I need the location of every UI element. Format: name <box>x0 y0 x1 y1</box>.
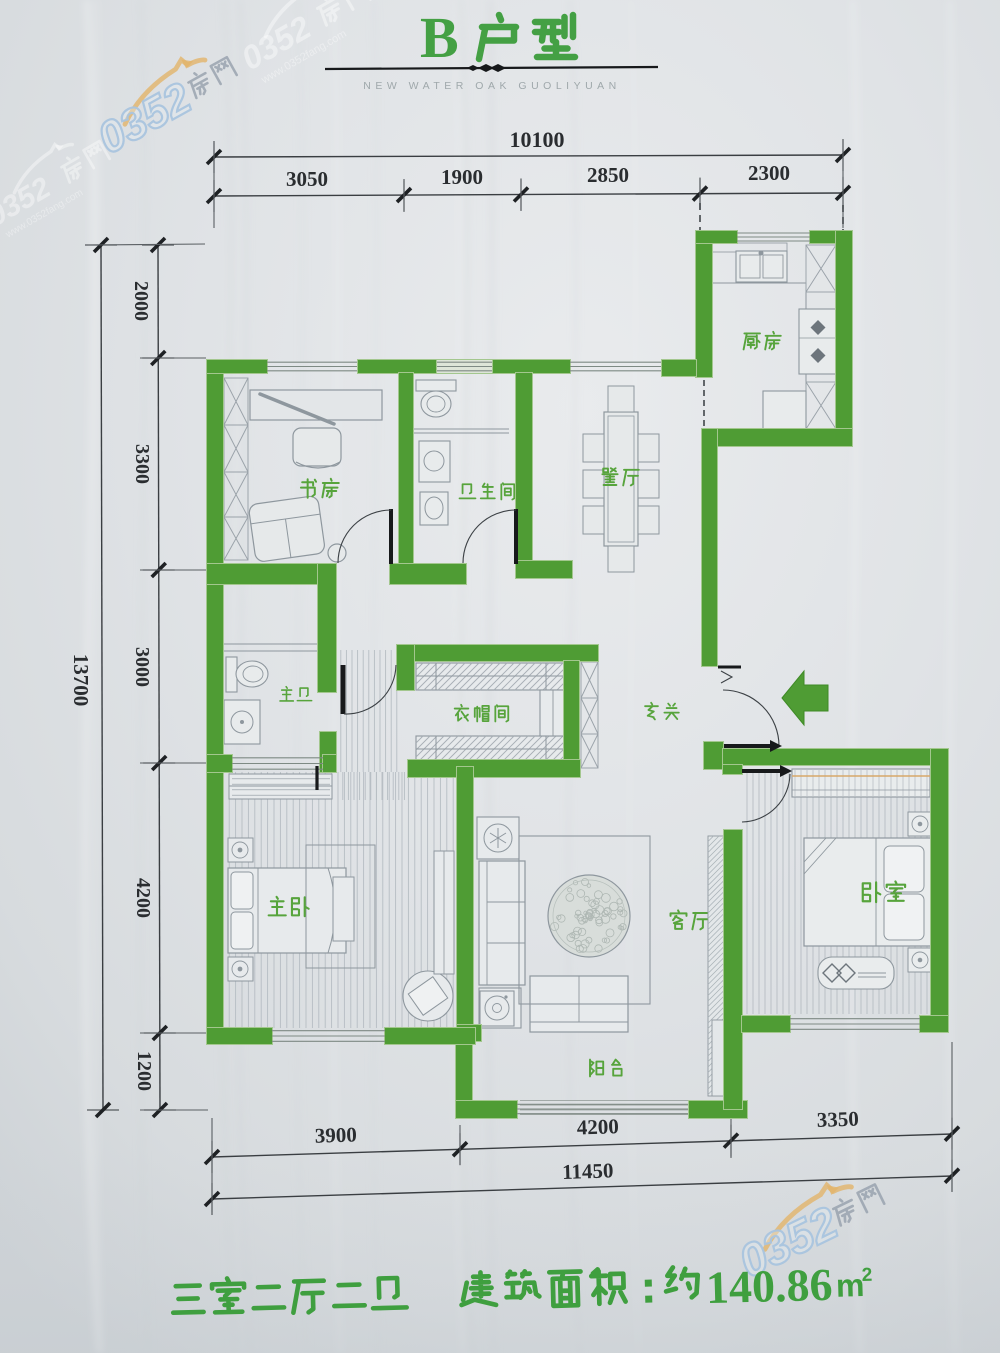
svg-text:13700: 13700 <box>69 654 93 707</box>
svg-text:2300: 2300 <box>748 161 790 185</box>
svg-text:4200: 4200 <box>576 1114 619 1139</box>
svg-text:3050: 3050 <box>286 167 328 191</box>
svg-text:NEW WATER OAK GUOLIYUAN: NEW WATER OAK GUOLIYUAN <box>363 80 621 92</box>
svg-text:3000: 3000 <box>131 647 153 687</box>
svg-text:B: B <box>420 5 459 70</box>
svg-text:3900: 3900 <box>314 1122 357 1147</box>
svg-text:3350: 3350 <box>816 1107 859 1132</box>
svg-text:140.86: 140.86 <box>705 1259 833 1313</box>
svg-text:10100: 10100 <box>510 127 565 152</box>
svg-text:1900: 1900 <box>441 165 483 189</box>
svg-text:2: 2 <box>861 1265 872 1286</box>
svg-text:1200: 1200 <box>133 1051 155 1091</box>
svg-text:3300: 3300 <box>131 444 153 484</box>
svg-text:m: m <box>835 1267 864 1304</box>
svg-text:2000: 2000 <box>130 281 152 321</box>
svg-text:4200: 4200 <box>132 878 154 918</box>
svg-text:2850: 2850 <box>587 163 629 187</box>
svg-text:11450: 11450 <box>562 1158 614 1184</box>
